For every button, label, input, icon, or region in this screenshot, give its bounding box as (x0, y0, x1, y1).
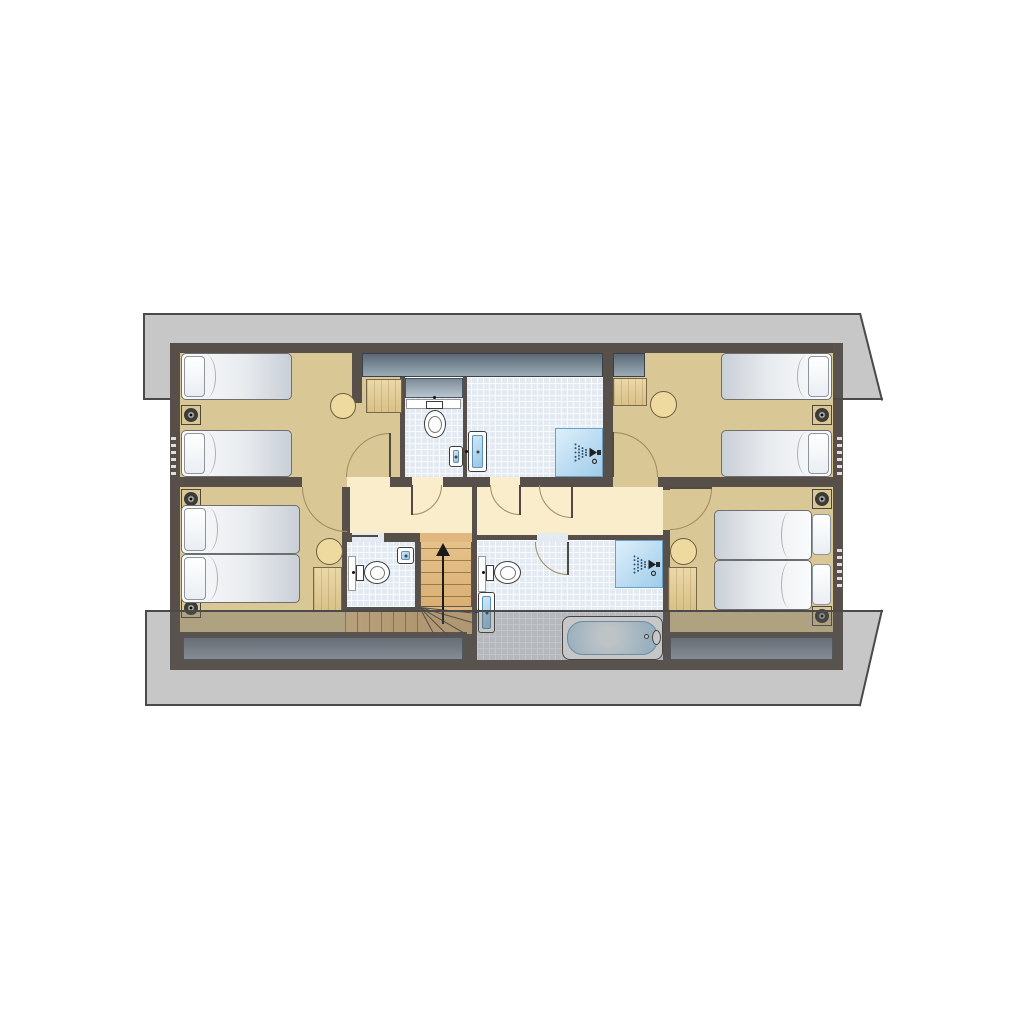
toilet-bowl-inner (428, 416, 442, 433)
side-table-round (670, 538, 697, 565)
pillow (808, 356, 829, 397)
door-gap-bathroom (537, 533, 568, 542)
door-gap-bedroom-top-left (347, 477, 390, 487)
pillow (184, 508, 206, 551)
toilet-dot (433, 396, 436, 399)
wall-vent (837, 437, 842, 479)
side-table-round (316, 538, 343, 565)
hand-basin (449, 446, 463, 467)
roof-edge (145, 704, 861, 706)
closet (366, 379, 402, 413)
toilet-cistern (426, 401, 443, 409)
floor-plan (0, 0, 1024, 1024)
toilet-bowl-inner (500, 566, 516, 580)
wall-vent (171, 437, 176, 479)
pillow (808, 433, 829, 474)
shower-head-icon (616, 551, 660, 578)
toilet-cistern (356, 565, 364, 581)
door-leaf-shower-top (519, 485, 521, 515)
roof-edge (143, 313, 861, 315)
toilet-bowl-inner (370, 566, 385, 580)
door-gap-bedroom-bottom-left (302, 477, 347, 487)
roof-overhang-bottom (145, 610, 883, 706)
pillow (184, 356, 205, 397)
pillow (184, 433, 205, 474)
downlight (812, 405, 832, 425)
faucet-dot (465, 450, 468, 453)
door-leaf-bathroom (567, 542, 569, 575)
hand-basin (397, 547, 414, 564)
roof-edge (143, 313, 145, 400)
side-table-round (330, 393, 356, 419)
toilet-dot (352, 571, 355, 574)
wall-vent (837, 549, 842, 591)
door-leaf-hallway (571, 485, 573, 518)
bed-double-half (714, 510, 812, 560)
wall-wc-bottom-east (415, 533, 420, 612)
wardrobe (668, 567, 697, 611)
wall-stub-top-left (352, 343, 362, 403)
door-gap-bedroom-bottom-right (663, 490, 670, 530)
side-table-round (650, 391, 677, 418)
door-leaf-bedroom-bottom-right (670, 487, 712, 489)
toilet-dot (482, 571, 485, 574)
sliding-door-wc-bottom (352, 535, 378, 537)
wall-wc-top-east (463, 377, 467, 487)
shower-head-icon (557, 439, 601, 466)
wc-shelf (478, 556, 486, 592)
stair-arrow-head (436, 543, 450, 556)
roof-edge (145, 610, 883, 612)
rooflight-wc (405, 378, 463, 398)
roof-edge (145, 610, 147, 706)
hallway-left-floor (342, 485, 472, 535)
wardrobe (313, 567, 342, 612)
rooflight-band-left (362, 353, 603, 377)
door-gap-stairs (420, 533, 472, 542)
pillow (812, 514, 831, 555)
bed-double-half (714, 560, 812, 610)
wall-wc-bottom-west (342, 535, 347, 612)
door-gap-bedroom-top-right (613, 477, 658, 487)
washbasin (468, 431, 487, 472)
door-leaf-wc-top (411, 485, 413, 515)
pillow (184, 557, 206, 600)
door-leaf-bedroom-top-right (612, 432, 614, 477)
roof-edge (143, 398, 171, 400)
toilet-cistern (486, 565, 494, 581)
roof-edge (833, 398, 883, 400)
door-leaf-bedroom-top-left (389, 433, 391, 477)
closet (613, 378, 647, 406)
downlight (812, 489, 832, 509)
pillow (812, 564, 831, 605)
downlight (181, 405, 201, 425)
rooflight-band-right (613, 353, 645, 377)
